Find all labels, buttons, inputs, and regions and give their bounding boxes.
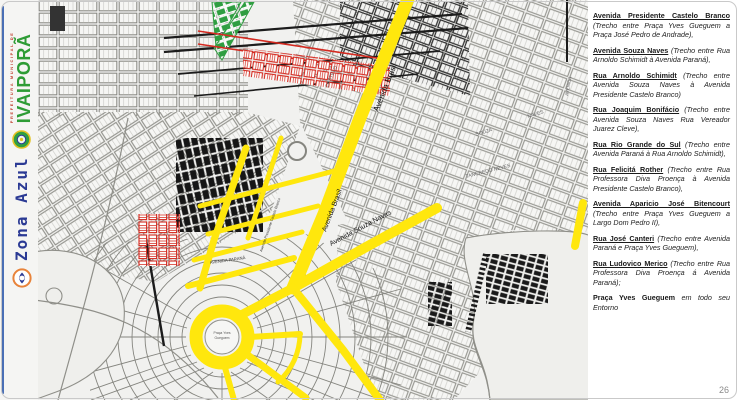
street-list-item: Rua Rio Grande do Sul (Trecho entre Aven… — [593, 140, 730, 159]
ivaipora-crest-icon — [12, 130, 31, 149]
street-list-item: Rua Arnoldo Schimidt (Trecho entre Aveni… — [593, 71, 730, 100]
street-name: Rua Joaquim Bonifácio — [593, 105, 679, 114]
small-roundabout — [288, 142, 306, 160]
zona-azul-logo-icon — [12, 268, 32, 288]
zona-azul-wordmark: Zona Azul — [12, 156, 31, 261]
sidebar-blue-edge — [2, 6, 4, 394]
street-list-item: Rua José Canteri (Trecho entre Avenida P… — [593, 234, 730, 253]
street-detail: (Trecho entre Praça Yves Gueguem a Praça… — [593, 21, 730, 40]
page-number: 26 — [719, 385, 729, 395]
slide: Zona Azul PREFEITURA MUNICIPAL DE IVAIPO… — [0, 0, 738, 400]
street-list-item: Rua Ludovico Merico (Trecho entre Rua Pr… — [593, 259, 730, 288]
street-list-item: Rua Felicitá Rother (Trecho entre Rua Pr… — [593, 165, 730, 194]
praca-label: Praça Yves — [213, 331, 230, 335]
street-name: Rua José Canteri — [593, 234, 654, 243]
street-name: Rua Ludovico Merico — [593, 259, 668, 268]
street-name: Avenida Presidente Castelo Branco — [593, 11, 730, 20]
street-name: Praça Yves Gueguem — [593, 293, 675, 302]
street-name: Rua Arnoldo Schimidt — [593, 71, 677, 80]
svg-text:Gueguem: Gueguem — [215, 336, 230, 340]
street-list-panel: Avenida Presidente Castelo Branco (Trech… — [588, 0, 738, 400]
city-map: Praça Yves Gueguem Avenida Brasil Avenid… — [38, 0, 588, 400]
street-list-item: Avenida Presidente Castelo Branco (Trech… — [593, 11, 730, 40]
street-name: Avenida Souza Naves — [593, 46, 668, 55]
street-name: Avenida Aparicio José Bitencourt — [593, 199, 730, 208]
city-wordmark: IVAIPORÃ — [15, 31, 33, 123]
street-list-item: Avenida Aparicio José Bitencourt (Trecho… — [593, 199, 730, 228]
street-list-item: Avenida Souza Naves (Trecho entre Rua Ar… — [593, 46, 730, 65]
street-list-item: Praça Yves Gueguem em todo seu Entorno — [593, 293, 730, 312]
street-list-item: Rua Joaquim Bonifácio (Trecho entre Aven… — [593, 105, 730, 134]
street-name: Rua Felicitá Rother — [593, 165, 663, 174]
left-brand-sidebar: Zona Azul PREFEITURA MUNICIPAL DE IVAIPO… — [0, 0, 38, 400]
street-detail: (Trecho entre Praça Yves Gueguem a Largo… — [593, 209, 730, 228]
street-name: Rua Rio Grande do Sul — [593, 140, 681, 149]
